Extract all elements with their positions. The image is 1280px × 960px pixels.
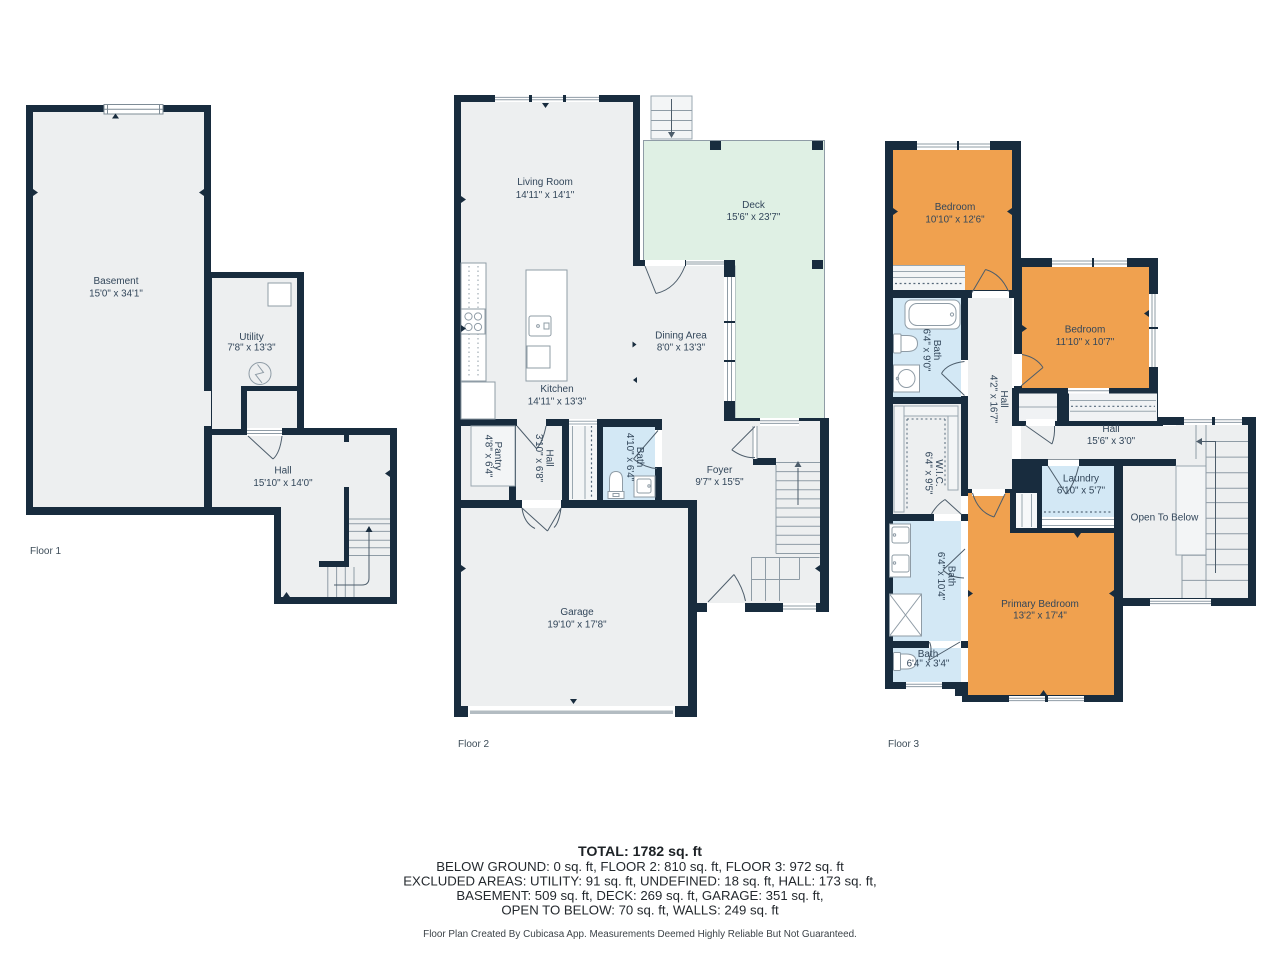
svg-text:19'10" x 17'8": 19'10" x 17'8" <box>547 620 607 631</box>
svg-text:Living Room: Living Room <box>517 177 573 188</box>
svg-text:6'4" x 9'5": 6'4" x 9'5" <box>923 452 934 495</box>
svg-text:Floor Plan Created By Cubicasa: Floor Plan Created By Cubicasa App. Meas… <box>423 929 857 940</box>
svg-text:Hall: Hall <box>998 390 1009 407</box>
svg-text:OPEN TO BELOW: 70 sq. ft, WALL: OPEN TO BELOW: 70 sq. ft, WALLS: 249 sq.… <box>501 903 779 918</box>
svg-text:Hall: Hall <box>274 466 291 477</box>
svg-text:BELOW GROUND: 0 sq. ft, FLOOR: BELOW GROUND: 0 sq. ft, FLOOR 2: 810 sq.… <box>436 859 844 874</box>
svg-text:7'8" x 13'3": 7'8" x 13'3" <box>227 343 276 354</box>
svg-text:10'10" x 12'6": 10'10" x 12'6" <box>925 215 985 226</box>
svg-text:Bedroom: Bedroom <box>1065 325 1106 336</box>
svg-text:TOTAL: 1782 sq. ft: TOTAL: 1782 sq. ft <box>578 844 702 860</box>
svg-text:13'2" x 17'4": 13'2" x 17'4" <box>1013 611 1067 622</box>
svg-text:Bath: Bath <box>946 566 957 587</box>
svg-text:Utility: Utility <box>239 332 263 343</box>
svg-text:Floor 1: Floor 1 <box>30 546 62 557</box>
svg-text:6'4" x 9'0": 6'4" x 9'0" <box>921 329 932 372</box>
svg-text:W.I.C.: W.I.C. <box>933 459 944 486</box>
svg-text:Dining Area: Dining Area <box>655 331 707 342</box>
svg-text:4'10" x 6'4": 4'10" x 6'4" <box>624 433 635 482</box>
svg-text:4'2" x 16'7": 4'2" x 16'7" <box>988 375 999 424</box>
svg-text:BASEMENT: 509 sq. ft, DECK: 26: BASEMENT: 509 sq. ft, DECK: 269 sq. ft, … <box>456 888 823 903</box>
svg-text:Deck: Deck <box>742 200 766 211</box>
svg-text:14'11" x 13'3": 14'11" x 13'3" <box>528 397 587 408</box>
svg-text:Hall: Hall <box>1102 424 1119 435</box>
svg-text:15'0" x 34'1": 15'0" x 34'1" <box>89 289 143 300</box>
svg-text:9'7" x 15'5": 9'7" x 15'5" <box>695 477 744 488</box>
svg-text:Basement: Basement <box>93 276 138 287</box>
svg-text:3'10" x 6'8": 3'10" x 6'8" <box>533 434 544 483</box>
svg-text:14'11" x 14'1": 14'11" x 14'1" <box>516 190 575 201</box>
svg-text:6'4" x 3'4": 6'4" x 3'4" <box>907 659 950 670</box>
svg-text:8'0" x 13'3": 8'0" x 13'3" <box>657 343 706 354</box>
svg-text:Open To Below: Open To Below <box>1131 513 1199 524</box>
svg-text:Floor 2: Floor 2 <box>458 739 490 750</box>
svg-text:Bath: Bath <box>931 340 942 361</box>
svg-text:Kitchen: Kitchen <box>540 384 573 395</box>
svg-text:Garage: Garage <box>560 607 594 618</box>
svg-text:15'10" x 14'0": 15'10" x 14'0" <box>253 478 313 489</box>
svg-text:EXCLUDED AREAS: UTILITY: 91 sq: EXCLUDED AREAS: UTILITY: 91 sq. ft, UNDE… <box>403 874 876 889</box>
svg-text:Floor 3: Floor 3 <box>888 739 920 750</box>
svg-text:4'8" x 6'4": 4'8" x 6'4" <box>483 435 494 478</box>
svg-text:15'6" x 23'7": 15'6" x 23'7" <box>727 212 781 223</box>
svg-text:15'6" x 3'0": 15'6" x 3'0" <box>1087 436 1136 447</box>
svg-text:6'4" x 10'4": 6'4" x 10'4" <box>935 552 946 601</box>
svg-text:6'10" x 5'7": 6'10" x 5'7" <box>1057 486 1106 497</box>
svg-text:Primary Bedroom: Primary Bedroom <box>1001 599 1079 610</box>
svg-text:Foyer: Foyer <box>707 465 733 476</box>
svg-text:Laundry: Laundry <box>1063 474 1099 485</box>
svg-text:Bedroom: Bedroom <box>935 202 976 213</box>
svg-text:Hall: Hall <box>544 449 555 466</box>
svg-text:11'10" x 10'7": 11'10" x 10'7" <box>1056 337 1115 348</box>
